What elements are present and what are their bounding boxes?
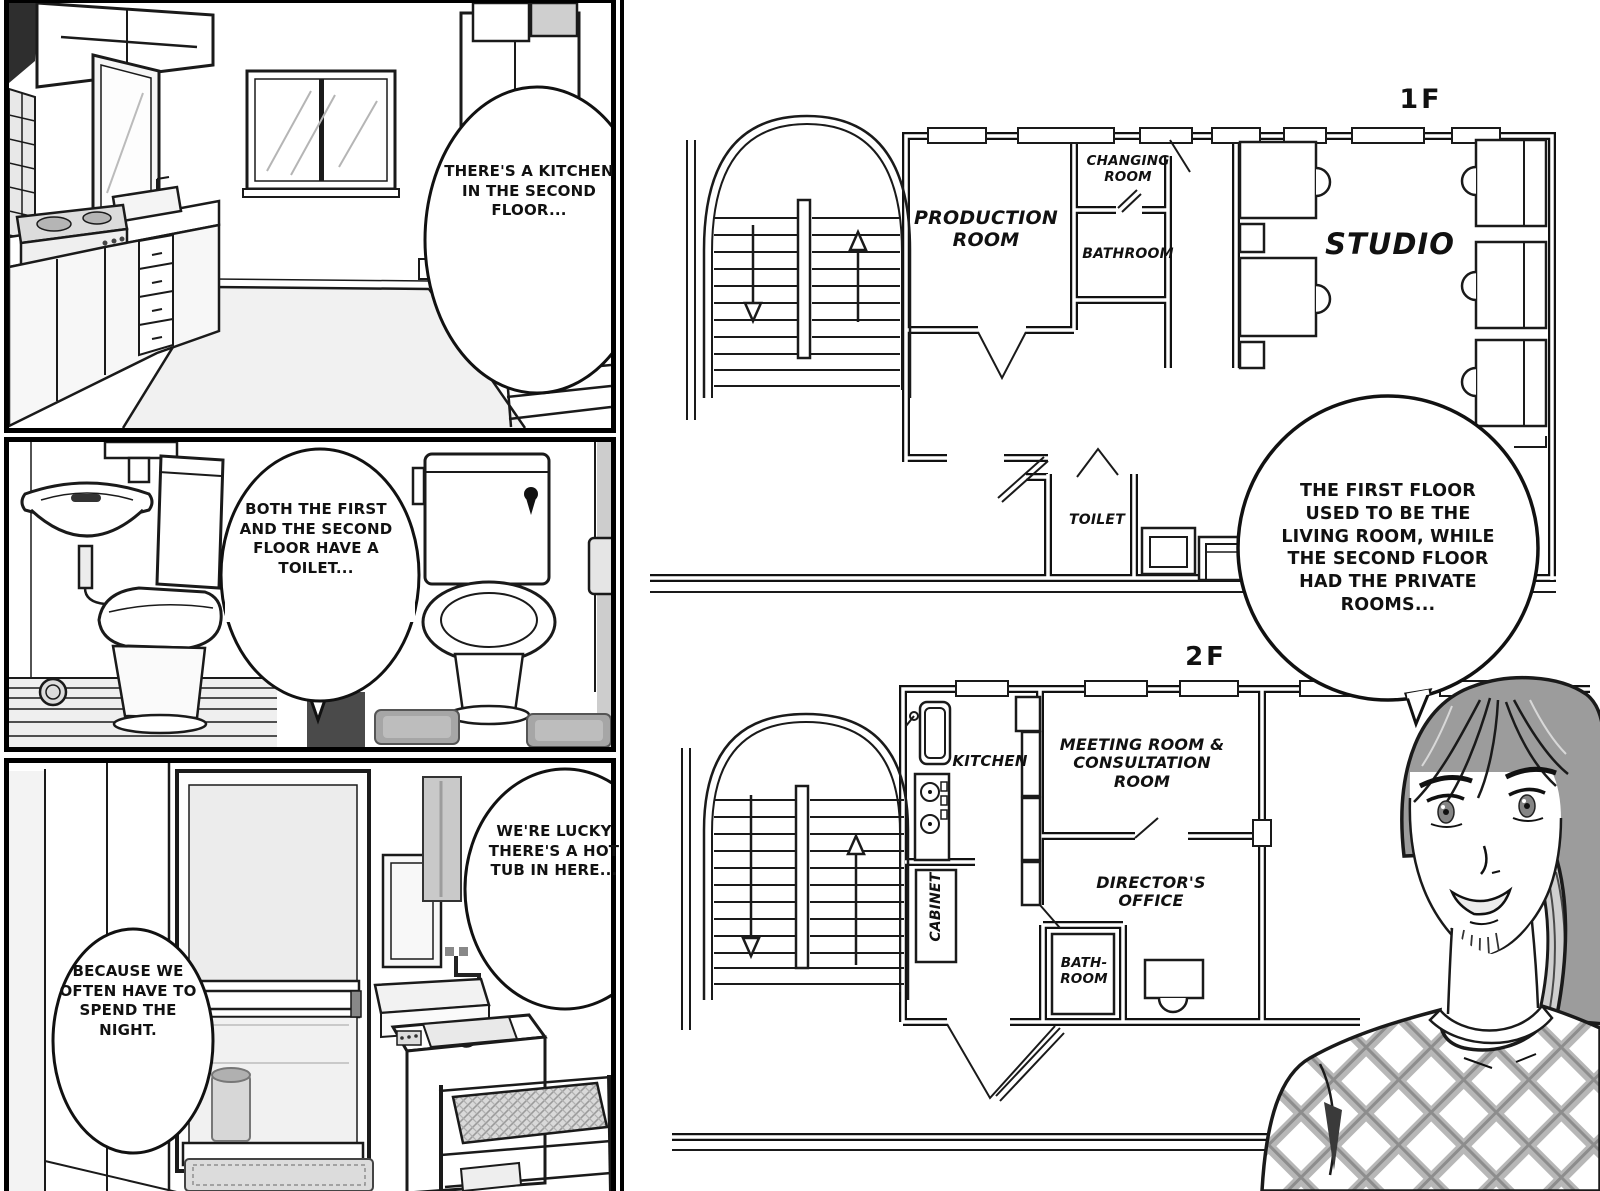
room-label-kitchen: KITCHEN (935, 753, 1045, 770)
corner-sink (22, 483, 152, 604)
bubble-toilet-text: BOTH THE FIRST AND THE SECOND FLOOR HAVE… (237, 500, 395, 578)
up-arrow-icon (848, 836, 864, 854)
room-label-toilet: TOILET (1057, 512, 1137, 528)
staircase-1f (687, 116, 910, 420)
speech-bubble (465, 769, 611, 1009)
panel-toilet (4, 437, 616, 752)
room-label-cabinet: CABINET (928, 867, 944, 947)
room-label-changing: CHANGING ROOM (1068, 154, 1188, 185)
room-label-bathroom-1f: BATHROOM (1068, 246, 1188, 262)
bubble-night-text: BECAUSE WE OFTEN HAVE TO SPEND THE NIGHT… (55, 962, 201, 1040)
bubble-hot-tub-text: WE'RE LUCKY THERE'S A HOT TUB IN HERE... (474, 822, 634, 881)
toilet-scene-art (9, 442, 611, 747)
bubble-kitchen-text: THERE'S A KITCHEN IN THE SECOND FLOOR... (440, 162, 618, 221)
sliding-door (177, 771, 369, 1171)
drawer-stack (139, 235, 173, 355)
bath-mat (185, 1159, 373, 1191)
room-label-bathroom-2f: BATH-ROOM (1048, 956, 1120, 987)
character-man (1262, 678, 1600, 1191)
fixtures-1f (1142, 528, 1247, 580)
toilet-room (9, 442, 611, 747)
back-window (243, 71, 399, 197)
narration-bubble-text: THE FIRST FLOOR USED TO BE THE LIVING RO… (1272, 480, 1504, 617)
manga-page: THERE'S A KITCHEN IN THE SECOND FLOOR... (0, 0, 1600, 1191)
doors-1f (978, 140, 1190, 502)
plaid-shirt (1262, 1006, 1600, 1191)
room-label-meeting: MEETING ROOM & CONSULTATION ROOM (1056, 736, 1228, 791)
paper-holder (589, 538, 611, 594)
director-desk (1145, 960, 1203, 1012)
floor-label-1f: 1F (1386, 84, 1456, 115)
bath-stool (212, 1068, 250, 1141)
down-arrow-icon (745, 303, 761, 321)
room-label-director: DIRECTOR'S OFFICE (1085, 874, 1217, 911)
room-label-production: PRODUCTION ROOM (906, 208, 1066, 252)
room-label-studio: STUDIO (1310, 228, 1470, 261)
floor-drain (40, 679, 66, 705)
floor-label-2f: 2F (1176, 643, 1236, 673)
toilet-right (413, 454, 555, 724)
staircase-2f (682, 714, 908, 1030)
